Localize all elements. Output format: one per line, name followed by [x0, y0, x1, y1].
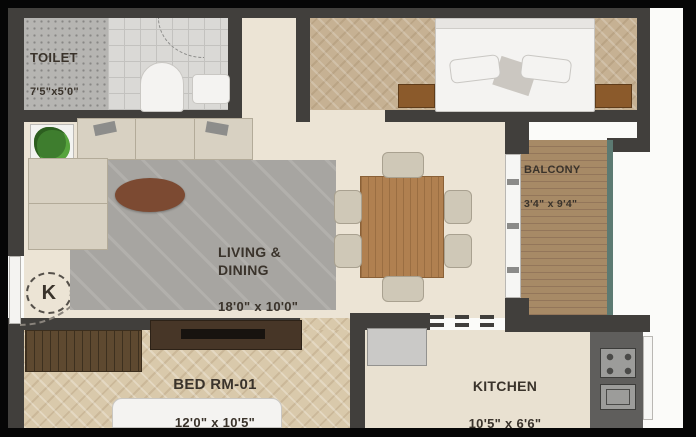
sofa-pillow	[205, 121, 229, 136]
wall-left-upper	[8, 8, 24, 256]
washbasin	[192, 74, 230, 104]
dining-chair	[334, 190, 362, 224]
toilet-dims: 7'5"x5'0"	[30, 86, 79, 100]
bedroom1-name: BED RM-01	[140, 376, 290, 395]
wall-balcony-bottom	[505, 315, 650, 332]
entrance-marker-circle: K	[26, 272, 72, 314]
sofa-chaise	[28, 158, 108, 250]
living-dining-name: LIVING & DINING	[218, 244, 298, 279]
passage-floor	[242, 18, 296, 122]
kitchen-name: KITCHEN	[440, 378, 570, 396]
bed-headboard	[436, 19, 594, 29]
window-post	[507, 223, 519, 229]
dining-chair	[382, 152, 424, 178]
sofa-cushion-line	[194, 119, 195, 159]
kitchen-dashed-opening	[430, 323, 506, 327]
wall-passage-right	[296, 8, 310, 122]
kitchen-dashed-opening	[430, 315, 506, 319]
sofa-pillow	[93, 121, 117, 136]
wall-left-lower	[8, 324, 24, 428]
sink-basin	[606, 389, 630, 405]
dining-chair	[334, 234, 362, 268]
dining-chair	[444, 234, 472, 268]
wall-bedroom2-right	[637, 8, 650, 152]
wall-kitchen-divider	[350, 318, 365, 428]
sofa-cushion-line	[29, 203, 107, 204]
dining-chair	[382, 276, 424, 302]
nightstand	[595, 84, 632, 108]
kitchen-window	[643, 336, 653, 420]
glass-railing	[607, 140, 613, 315]
sofa-cushion-line	[135, 119, 136, 159]
kitchen-label: KITCHEN 10'5" x 6'6"	[440, 358, 570, 437]
wall-toilet-right	[228, 8, 242, 122]
bedroom1-label: BED RM-01 12'0" x 10'5"	[140, 356, 290, 437]
window-post	[507, 179, 519, 185]
living-dining-dims: 18'0" x 10'0"	[218, 299, 298, 315]
kitchen-dims: 10'5" x 6'6"	[440, 416, 570, 432]
nightstand	[398, 84, 435, 108]
dining-chair	[444, 190, 472, 224]
kitchen-counter	[590, 332, 643, 428]
toilet-fixture	[140, 62, 184, 112]
wardrobe	[25, 330, 142, 372]
sink-icon	[600, 384, 636, 410]
bed	[435, 18, 595, 112]
coffee-table	[115, 178, 185, 212]
toilet-label: TOILET 7'5"x5'0"	[30, 30, 79, 120]
cooktop-icon	[600, 348, 636, 378]
toilet-name: TOILET	[30, 50, 79, 66]
window-post	[507, 267, 519, 273]
dining-table	[360, 176, 444, 278]
sofa	[77, 118, 253, 160]
wall-top	[8, 8, 650, 18]
bedroom1-dims: 12'0" x 10'5"	[140, 415, 290, 431]
wall-balcony-top-corner	[607, 138, 650, 152]
floor-plan: K	[0, 0, 696, 437]
balcony-label: BALCONY 3'4" x 9'4"	[524, 144, 604, 231]
balcony-dims: 3'4" x 9'4"	[524, 198, 604, 211]
balcony-name: BALCONY	[524, 164, 604, 178]
fridge	[367, 328, 427, 366]
living-dining-label: LIVING & DINING 18'0" x 10'0"	[218, 224, 298, 335]
entrance-marker-label: K	[42, 281, 57, 306]
balcony-sliding-window	[505, 154, 521, 298]
